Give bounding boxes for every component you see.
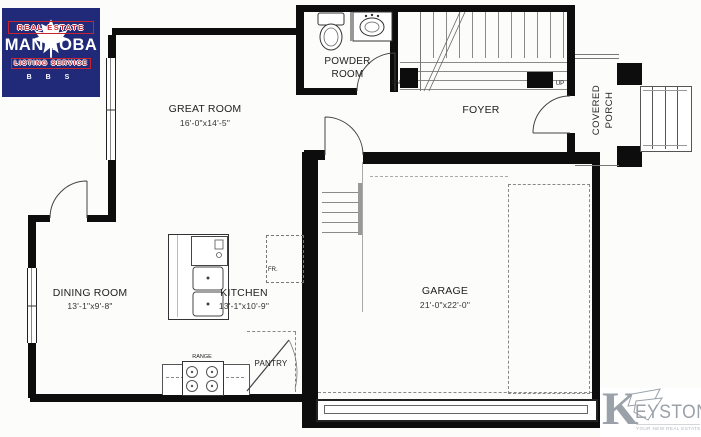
mls-real-estate-text: REAL ESTATE <box>8 21 94 34</box>
wall-segment <box>296 12 304 95</box>
stairs-basement-treads <box>322 192 362 233</box>
covered-porch-line2: PORCH <box>603 65 616 155</box>
window-tick <box>27 110 116 306</box>
kitchen-label: KITCHEN <box>213 287 275 300</box>
door-arc <box>50 181 87 218</box>
wall-segment <box>112 28 304 35</box>
wall-segment <box>28 215 50 222</box>
garage-dims: 21'-0"x22'-0" <box>385 300 505 311</box>
mls-manitoba-text: MANITOBA <box>2 36 100 55</box>
floor-plan: GREAT ROOM 16'-0"x14'-5" POWDER ROOM FOY… <box>0 0 701 437</box>
sink-icon <box>351 12 392 41</box>
step-line <box>677 87 678 149</box>
island-counter-line <box>177 235 178 317</box>
powder-room-label2: ROOM <box>310 69 385 82</box>
garage-door-track-dashed <box>318 392 592 393</box>
pantry-dashed-line <box>295 332 296 392</box>
stairs-up-label: UP <box>551 81 569 89</box>
stair-stub-wall <box>527 72 553 88</box>
porch-roof-line <box>575 58 619 59</box>
step-line <box>652 87 653 149</box>
garage-dashed-outline <box>508 184 590 394</box>
door-arc <box>533 96 570 133</box>
wall-segment <box>28 343 36 398</box>
range-label: RANGE <box>184 354 220 361</box>
garage-label: GARAGE <box>385 285 505 298</box>
porch-roof-line <box>575 54 619 55</box>
wall-segment <box>108 35 116 58</box>
wall-segment <box>296 5 575 12</box>
dining-room-dims: 13'-1"x9'-8" <box>35 301 145 312</box>
toilet-icon <box>318 13 344 50</box>
stair-edge-line <box>420 12 421 91</box>
porch-steps <box>640 86 692 152</box>
pantry-label: PANTRY <box>247 359 295 369</box>
keystone-logo: K EYSTONE YOUR NEW REAL ESTATE RESOURCE <box>600 388 701 437</box>
porch-edge-line <box>575 165 619 166</box>
dining-room-label: DINING ROOM <box>35 287 145 300</box>
dishwasher-box <box>191 236 228 266</box>
mls-logo: REAL ESTATE MANITOBA LISTING SERVICE B B… <box>2 8 100 97</box>
foyer-label: FOYER <box>445 104 517 117</box>
great-room-dims: 16'-0"x14'-5" <box>145 118 265 129</box>
garage-door-inner <box>324 405 588 414</box>
range-box <box>182 361 224 396</box>
wall-segment <box>592 158 600 428</box>
garage-dashed-line <box>370 176 508 177</box>
stair-rail-line <box>362 162 363 312</box>
wall-segment <box>302 152 318 402</box>
covered-porch-label: COVERED PORCH <box>583 65 623 155</box>
keystone-tagline: YOUR NEW REAL ESTATE RESOURCE <box>636 424 700 431</box>
fridge-box <box>266 235 304 283</box>
fridge-label: FR. <box>268 267 288 275</box>
window <box>106 58 116 160</box>
great-room-label: GREAT ROOM <box>145 103 265 116</box>
stairs-up-treads <box>420 12 567 58</box>
floorplan-page: { "logo_mls": { "real_estate": "REAL EST… <box>0 0 701 437</box>
covered-porch-line1: COVERED <box>590 65 603 155</box>
door-arc <box>325 117 363 155</box>
keystone-name-text: EYSTONE <box>635 403 701 422</box>
wall-segment <box>363 152 600 164</box>
step-line <box>643 90 687 91</box>
wall-segment <box>108 160 116 222</box>
pantry-dashed-line <box>247 331 296 332</box>
step-line <box>643 145 687 146</box>
stairs-down-label: DN <box>388 80 404 87</box>
wall-segment <box>28 222 36 268</box>
wall-segment <box>304 88 357 95</box>
mls-bbs-text: B B S <box>2 74 100 81</box>
wall-segment <box>30 394 310 402</box>
step-line <box>665 87 666 149</box>
kitchen-dims: 13'-1"x10'-9" <box>205 301 283 312</box>
mls-listing-service-text: LISTING SERVICE <box>11 58 91 69</box>
powder-room-label: POWDER <box>310 56 385 69</box>
